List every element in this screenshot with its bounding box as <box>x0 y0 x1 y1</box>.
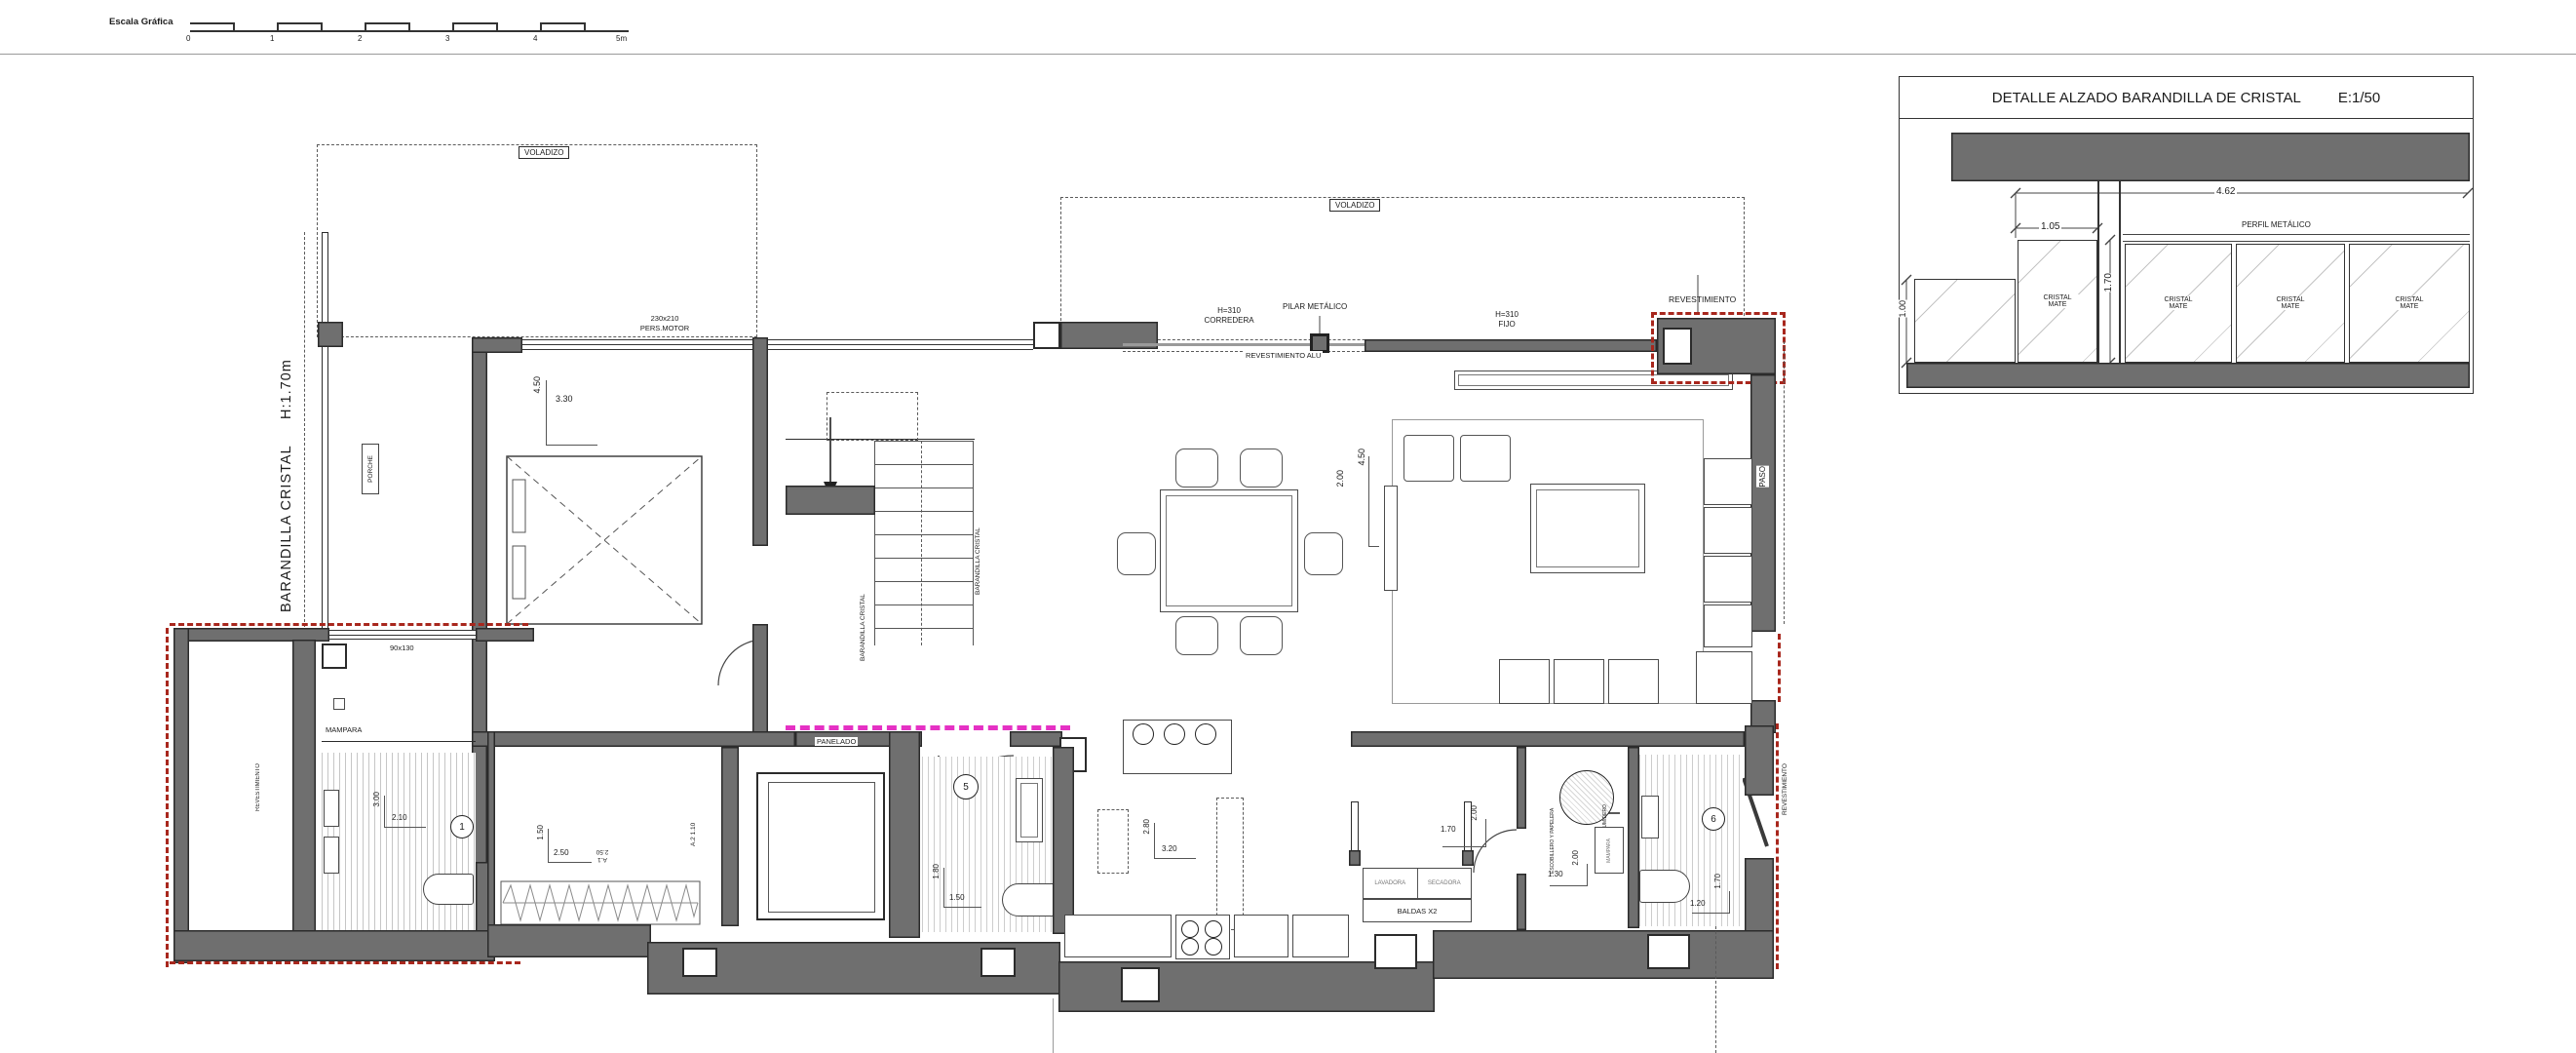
detail-post <box>2097 181 2121 363</box>
detail-glass-4-label: CRISTAL MATE <box>2387 296 2432 310</box>
kitchen-dim-h: 2.80 <box>1142 819 1151 835</box>
hob-burner <box>1181 938 1199 955</box>
vestidor-tag-a1-code: A.1 <box>597 856 607 863</box>
rev-top-label: REVESTIMIENTO <box>1669 294 1736 304</box>
barandilla-left-label: BARANDILLA CRISTAL H:1.70m <box>279 310 294 612</box>
bath1-dim-h: 3.00 <box>372 792 381 807</box>
red-dash-bl-top <box>170 623 528 626</box>
elevator-cab <box>768 782 875 913</box>
staircase <box>874 441 974 645</box>
wall-spine-1 <box>472 731 795 747</box>
bedroom-window-type: PERS.MOTOR <box>640 324 689 332</box>
wall-niche <box>682 948 717 977</box>
escobillero-label: ESCOBILLERO Y PAPELERA <box>1550 772 1556 874</box>
detail-perfil-label: PERFIL METÁLICO <box>2242 220 2311 229</box>
terrace-dash-right <box>1784 341 1785 624</box>
panelado-magenta-dash <box>786 725 1070 730</box>
panelado-label: PANELADO <box>815 737 858 746</box>
detail-glass-4: CRISTAL MATE <box>2349 244 2470 363</box>
wall-laundry-divider-b <box>1517 874 1526 930</box>
voladizo-outline-right <box>1060 197 1745 340</box>
wall-bl-top-right <box>476 628 534 642</box>
red-dash-bl-left <box>166 628 169 967</box>
living-dim-bracket <box>1368 456 1379 547</box>
wall-vestidor-right <box>721 747 739 926</box>
detail-wall-top <box>1951 133 2470 181</box>
dining-chair <box>1117 532 1156 575</box>
kitchen-upper-cabinet <box>1216 798 1244 930</box>
wall-bl-left <box>173 628 189 963</box>
railing-pillar <box>318 322 343 347</box>
detail-glass-1-label: CRISTAL MATE <box>2035 294 2080 308</box>
bath1-floor <box>322 753 476 932</box>
wall-bedroom-right-lower <box>752 624 768 733</box>
pilar-label: PILAR METÁLICO <box>1283 302 1347 311</box>
door-jamb-cap <box>1462 850 1474 866</box>
dining-table <box>1160 489 1298 612</box>
dining-chair <box>1240 448 1283 487</box>
drawing-sheet: Escala Gráfica 0 1 2 3 4 5m <box>0 0 2576 1053</box>
barandilla-left-height: H:1.70m <box>279 360 294 420</box>
corner-post-bedroom <box>1033 322 1060 349</box>
wall-bath6-right-upper <box>1745 725 1774 796</box>
red-dash-bath6-right <box>1776 723 1779 969</box>
utility-dim-bracket <box>1550 864 1588 886</box>
mampara-screen-line <box>322 741 476 742</box>
dining-chair <box>1304 532 1343 575</box>
grid-line-dashed <box>1715 926 1716 1053</box>
voladizo-label-right-text: VOLADIZO <box>1335 201 1374 210</box>
sofa-corner-module <box>1696 651 1752 704</box>
wall-vestidor-stub <box>487 731 495 936</box>
armchair <box>1460 435 1511 482</box>
kitchen-upper-cabinet <box>1097 809 1129 874</box>
dryer-cell: SECADORA <box>1418 869 1472 898</box>
detail-title-bar: DETALLE ALZADO BARANDILLA DE CRISTAL E:1… <box>1900 77 2473 119</box>
laundry-appliances: LAVADORA SECADORA <box>1363 868 1472 899</box>
bath5-number: 5 <box>953 774 979 799</box>
rev-right-label: REVESTIMIENTO <box>1782 727 1788 815</box>
bath1-vanity <box>324 837 339 874</box>
wall-niche <box>1121 967 1160 1002</box>
barandilla-left-text: BARANDILLA CRISTAL <box>279 445 294 612</box>
porche-label-text: PORCHE <box>367 455 374 483</box>
stair-rail-label-left: BARANDILLA CRISTAL <box>860 515 866 661</box>
dryer-label: SECADORA <box>1428 880 1461 886</box>
sofa-module <box>1704 458 1752 505</box>
bath1-number-text: 1 <box>459 822 465 833</box>
wall-bath6-right-lower <box>1745 858 1774 934</box>
sofa-module <box>1704 556 1752 603</box>
mampara-label: MAMPARA <box>324 725 364 734</box>
wall-niche <box>1374 934 1417 969</box>
voladizo-label-left-text: VOLADIZO <box>524 148 563 157</box>
kitchen-island-sink <box>1133 723 1154 745</box>
rev-left-label: REVESTIMIENTO <box>255 729 261 811</box>
wall-spine-3 <box>1010 731 1062 747</box>
bath6-number: 6 <box>1702 807 1725 831</box>
bath1-window <box>329 630 476 640</box>
detail-title: DETALLE ALZADO BARANDILLA DE CRISTAL <box>1992 90 2301 106</box>
stair-dashed-opening <box>827 392 918 441</box>
living-dim-w: 2.00 <box>1335 470 1345 487</box>
fijo-label: H=310 FIJO <box>1478 310 1536 331</box>
vestidor-tag-a2-dim: 1.10 <box>690 823 697 836</box>
bath5-number-text: 5 <box>963 782 969 793</box>
bath1-dim-bracket <box>384 796 426 828</box>
vestidor-tag-a1-dim: 2.50 <box>596 847 609 854</box>
bedroom-window-size: 230x210 <box>651 314 679 323</box>
sofa-module <box>1704 604 1752 647</box>
laundry-shelves-label: BALDAS X2 <box>1398 907 1438 916</box>
kitchen-dim-bracket <box>1154 823 1196 859</box>
wall-right-upper <box>1750 374 1776 632</box>
bath5-toilet <box>1002 883 1057 916</box>
sofa-module <box>1499 659 1550 704</box>
wall-bath5-right <box>1053 747 1074 934</box>
detail-profile-rail <box>2123 234 2470 242</box>
door-jamb-cap <box>1349 850 1361 866</box>
kitchen-island-sink <box>1195 723 1216 745</box>
bath1-window-label: 90x130 <box>388 643 416 652</box>
sofa-module <box>1704 507 1752 554</box>
voladizo-outline-left <box>317 144 757 337</box>
dining-chair <box>1175 448 1218 487</box>
bath6-toilet <box>1639 870 1690 903</box>
sofa-module <box>1554 659 1604 704</box>
wall-bottom-2 <box>487 924 651 957</box>
washer-cell: LAVADORA <box>1364 869 1418 898</box>
corner-post-bath1 <box>322 643 347 669</box>
fijo-height: H=310 <box>1495 310 1519 319</box>
wall-niche <box>1647 934 1690 969</box>
bedroom-dim-bracket <box>546 380 597 446</box>
bath6-dim-h: 1.70 <box>1713 874 1722 889</box>
stair-rail-label-right: BARANDILLA CRISTAL <box>975 448 981 595</box>
wall-elevator-right <box>889 731 920 938</box>
wall-niche <box>980 948 1016 977</box>
red-dash-top-right <box>1651 312 1786 384</box>
bath5-sink <box>1016 778 1043 842</box>
kitchen-counter <box>1234 915 1288 957</box>
kitchen-counter <box>1064 915 1172 957</box>
laundry-shelves: BALDAS X2 <box>1363 899 1472 922</box>
red-dash-right-mid <box>1778 634 1781 702</box>
bath1-vanity <box>324 790 339 827</box>
armchair <box>1403 435 1454 482</box>
sumidero-label: SUMIDERO <box>1602 776 1608 831</box>
voladizo-label-left: VOLADIZO <box>519 146 569 159</box>
bath1-number: 1 <box>450 815 474 838</box>
living-dim-h: 4.50 <box>1357 448 1366 466</box>
wall-laundry-divider-a <box>1517 747 1526 829</box>
bath6-number-text: 6 <box>1711 814 1716 825</box>
sofa-module <box>1608 659 1659 704</box>
detail-dim-total: 4.62 <box>2214 186 2237 197</box>
stair-centerline <box>921 441 922 645</box>
detail-glass-3-label: CRISTAL MATE <box>2268 296 2313 310</box>
dining-chair <box>1240 616 1283 655</box>
dining-chair <box>1175 616 1218 655</box>
detail-glass-1: CRISTAL MATE <box>2018 240 2097 363</box>
hob-burner <box>1205 920 1222 938</box>
bedroom-window-label: 230x210 PERS.MOTOR <box>624 314 706 333</box>
detail-wall-bottom <box>1906 363 2470 388</box>
wall-bedroom-right-upper <box>752 337 768 546</box>
pilar-metalico <box>1310 333 1329 353</box>
utility-screen: MAMPARA <box>1595 827 1624 874</box>
vestidor-tag-a1: A.1 2.50 <box>583 846 622 863</box>
terrace-boundary-dash <box>304 232 305 632</box>
rev-alu-label: REVESTIMIENTO ALU <box>1244 351 1323 360</box>
wall-utility-bath6 <box>1628 747 1639 928</box>
vestidor-tag-a2-code: A.2 <box>690 837 697 846</box>
hob-burner <box>1181 920 1199 938</box>
tv-console <box>1384 486 1398 591</box>
laundry-dim-bracket <box>1442 819 1486 847</box>
washer-label: LAVADORA <box>1374 880 1405 886</box>
paso-label: PASO <box>1756 466 1769 487</box>
detail-dim-low: 1.00 <box>1896 300 1909 318</box>
red-dash-bottom-left <box>170 961 520 964</box>
hob-burner <box>1205 938 1222 955</box>
vestidor-tag-a2: A.2 1.10 <box>690 811 697 858</box>
bath5-dim-bracket <box>943 868 981 908</box>
kitchen-island-sink <box>1164 723 1185 745</box>
wall-bedroom-top-stub <box>472 337 522 353</box>
fijo-type: FIJO <box>1498 320 1515 329</box>
kitchen-counter <box>1292 915 1349 957</box>
detail-dim-panel: 1.05 <box>2039 221 2061 232</box>
wall-spine-4 <box>1351 731 1745 747</box>
bath1-toilet <box>423 874 474 905</box>
corredera-type: CORREDERA <box>1204 316 1253 325</box>
porche-label-box: PORCHE <box>362 444 379 494</box>
coffee-table <box>1530 484 1645 573</box>
stair-landing-slab <box>786 486 875 515</box>
door-jamb <box>1351 801 1359 856</box>
bath6-sink <box>1641 796 1659 838</box>
detail-dim-height: 1.70 <box>2101 273 2116 292</box>
bedroom-dim-h: 4.50 <box>532 376 542 394</box>
corredera-height: H=310 <box>1217 306 1241 315</box>
detail-scale: E:1/50 <box>2338 90 2380 106</box>
bedroom-window <box>522 339 1033 350</box>
wall-bottom-5 <box>1433 930 1774 979</box>
glass-railing-left <box>322 232 328 632</box>
detail-glass-low <box>1914 279 2016 363</box>
utility-screen-label: MAMPARA <box>1606 838 1612 863</box>
voladizo-label-right: VOLADIZO <box>1329 199 1380 212</box>
fijo-glazing-bar <box>1365 339 1657 352</box>
bath6-dim-bracket <box>1692 891 1730 914</box>
detail-glass-2-label: CRISTAL MATE <box>2156 296 2201 310</box>
corredera-label: H=310 CORREDERA <box>1185 306 1273 327</box>
grid-line-solid <box>1053 998 1054 1053</box>
wall-bottom-1 <box>173 930 495 961</box>
bath1-drain <box>333 698 345 710</box>
vestidor-dim-h: 1.50 <box>536 825 545 840</box>
detail-glass-3: CRISTAL MATE <box>2236 244 2345 363</box>
bath5-dim-h: 1.80 <box>932 864 941 879</box>
detail-glass-2: CRISTAL MATE <box>2125 244 2232 363</box>
wall-bl-divider <box>292 640 316 936</box>
